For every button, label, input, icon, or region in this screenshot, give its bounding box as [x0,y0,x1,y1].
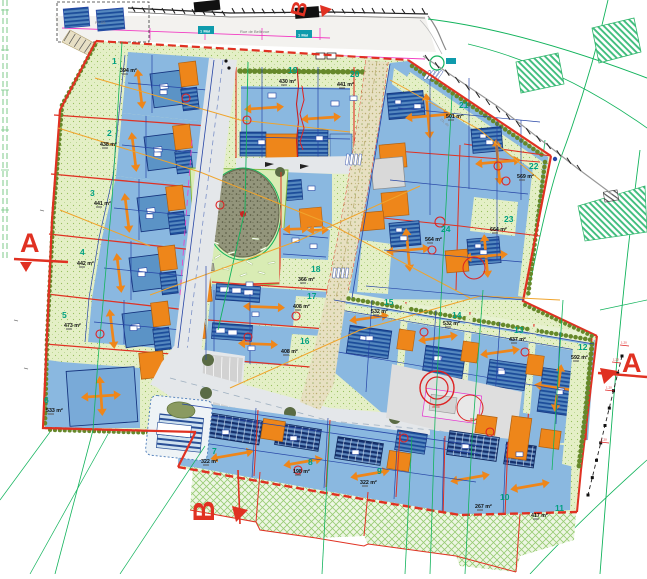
svg-text:14: 14 [452,310,462,320]
svg-text:1.20: 1.20 [613,358,619,362]
svg-text:A: A [20,228,40,258]
svg-text:1.20: 1.20 [601,438,607,442]
svg-text:24: 24 [441,224,451,234]
svg-text:408 m²: 408 m² [281,349,298,355]
svg-text:A: A [622,348,642,378]
svg-text:532 m²: 532 m² [371,309,388,315]
svg-text:23: 23 [504,214,514,224]
svg-text:430 m²: 430 m² [279,79,296,85]
svg-text:394 m²: 394 m² [120,68,137,74]
svg-text:16: 16 [300,336,310,346]
svg-text:12: 12 [578,342,588,352]
svg-text:13: 13 [514,325,524,335]
svg-text:22: 22 [529,161,539,171]
svg-text:532 m²: 532 m² [443,321,460,327]
svg-text:5: 5 [62,310,67,320]
svg-text:408 m²: 408 m² [293,304,310,310]
svg-text:1.20: 1.20 [606,386,612,390]
svg-text:501 m²: 501 m² [446,114,463,120]
svg-text:21: 21 [459,100,469,110]
svg-text:417 m²: 417 m² [531,513,548,519]
svg-text:6: 6 [44,395,49,405]
svg-text:592 m²: 592 m² [571,355,588,361]
svg-text:4: 4 [80,247,85,257]
svg-text:B: B [188,500,221,522]
svg-text:437 m²: 437 m² [509,337,526,343]
svg-text:7: 7 [212,446,217,456]
svg-text:569 m²: 569 m² [517,174,534,180]
svg-text:441 m²: 441 m² [337,82,354,88]
svg-text:366 m²: 366 m² [298,277,315,283]
svg-text:564 m²: 564 m² [425,237,442,243]
svg-text:442 m²: 442 m² [77,261,94,267]
svg-text:10: 10 [500,492,510,502]
svg-text:1 Mai: 1 Mai [298,33,308,38]
svg-text:3: 3 [90,188,95,198]
svg-text:1: 1 [112,56,117,66]
svg-text:9: 9 [377,466,382,476]
svg-text:Rue de Bellevue: Rue de Bellevue [240,29,270,34]
svg-text:267 m²: 267 m² [475,504,492,510]
svg-text:198 m²: 198 m² [293,469,310,475]
svg-text:15: 15 [384,297,394,307]
svg-text:17: 17 [307,291,317,301]
svg-text:2: 2 [107,128,112,138]
svg-text:438 m²: 438 m² [100,142,117,148]
svg-text:19: 19 [288,65,298,75]
svg-text:1.20: 1.20 [621,341,627,345]
svg-text:8: 8 [308,457,313,467]
svg-text:20: 20 [350,69,360,79]
svg-text:441 m²: 441 m² [94,201,111,207]
svg-text:322 m²: 322 m² [360,480,377,486]
svg-text:18: 18 [311,264,321,274]
svg-text:11: 11 [555,503,564,513]
svg-text:533 m²: 533 m² [46,408,63,414]
svg-text:1 Mai: 1 Mai [200,29,210,34]
svg-text:322 m²: 322 m² [201,459,218,465]
svg-text:PE CS: PE CS [95,21,106,25]
svg-text:664 m²: 664 m² [490,227,507,233]
svg-text:473 m²: 473 m² [64,323,81,329]
